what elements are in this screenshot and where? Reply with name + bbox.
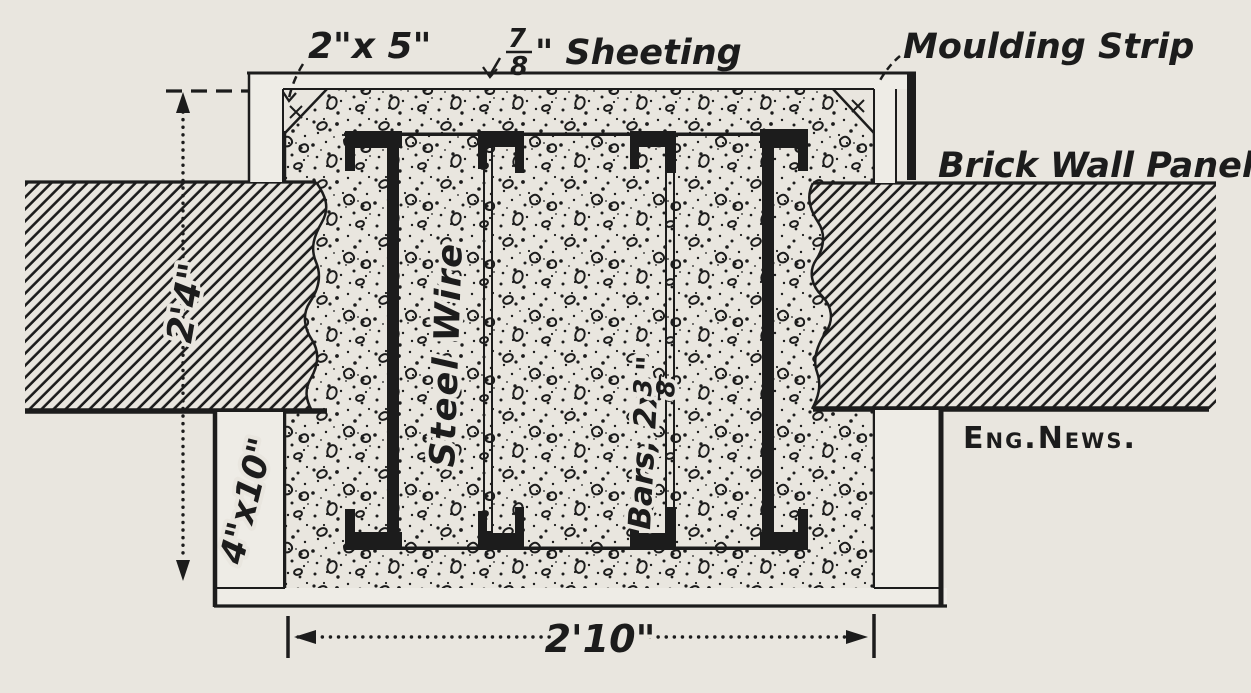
form-top-label: 2"x 5"	[308, 26, 431, 67]
concrete-column	[283, 89, 876, 591]
bars-fraction-bar	[659, 375, 660, 400]
bars-fraction-denominator: 8	[651, 379, 681, 398]
sheeting-fraction-denominator: 8	[510, 52, 528, 82]
vertical-bar	[762, 148, 774, 532]
bottom-tie-band	[344, 547, 808, 551]
moulding-strip	[874, 89, 896, 183]
sheeting-fraction-numerator: 7	[508, 24, 527, 54]
construction-drawing: Steel Wire Bars, 2x 3 8 " 2'4"	[0, 0, 1251, 693]
top-tie-band	[344, 133, 808, 137]
steel-wire-label: Steel Wire	[423, 241, 471, 467]
concrete-fill	[285, 89, 874, 590]
drawing-sheet: Steel Wire Bars, 2x 3 8 " 2'4"	[0, 0, 1251, 693]
sheeting-label: " Sheeting	[535, 33, 742, 73]
form-end-post	[907, 72, 916, 180]
width-dimension-label: 2'10"	[545, 617, 656, 661]
vertical-bar	[387, 148, 399, 532]
bottom-sheeting-board	[214, 588, 947, 606]
right-brick-wall	[809, 183, 1216, 409]
right-wall-hatch	[809, 183, 1216, 409]
right-form-board	[874, 410, 941, 588]
svg-text:Bars, 2x: Bars, 2x	[622, 385, 665, 530]
credit-label: Eng.News.	[963, 421, 1137, 456]
svg-text:Steel Wire: Steel Wire	[423, 241, 471, 467]
form-board-2x5	[249, 72, 283, 182]
moulding-strip-label: Moulding Strip	[903, 27, 1194, 67]
brick-wall-panel-label: Brick Wall Panel	[938, 146, 1251, 186]
bars-suffix: "	[630, 355, 667, 373]
